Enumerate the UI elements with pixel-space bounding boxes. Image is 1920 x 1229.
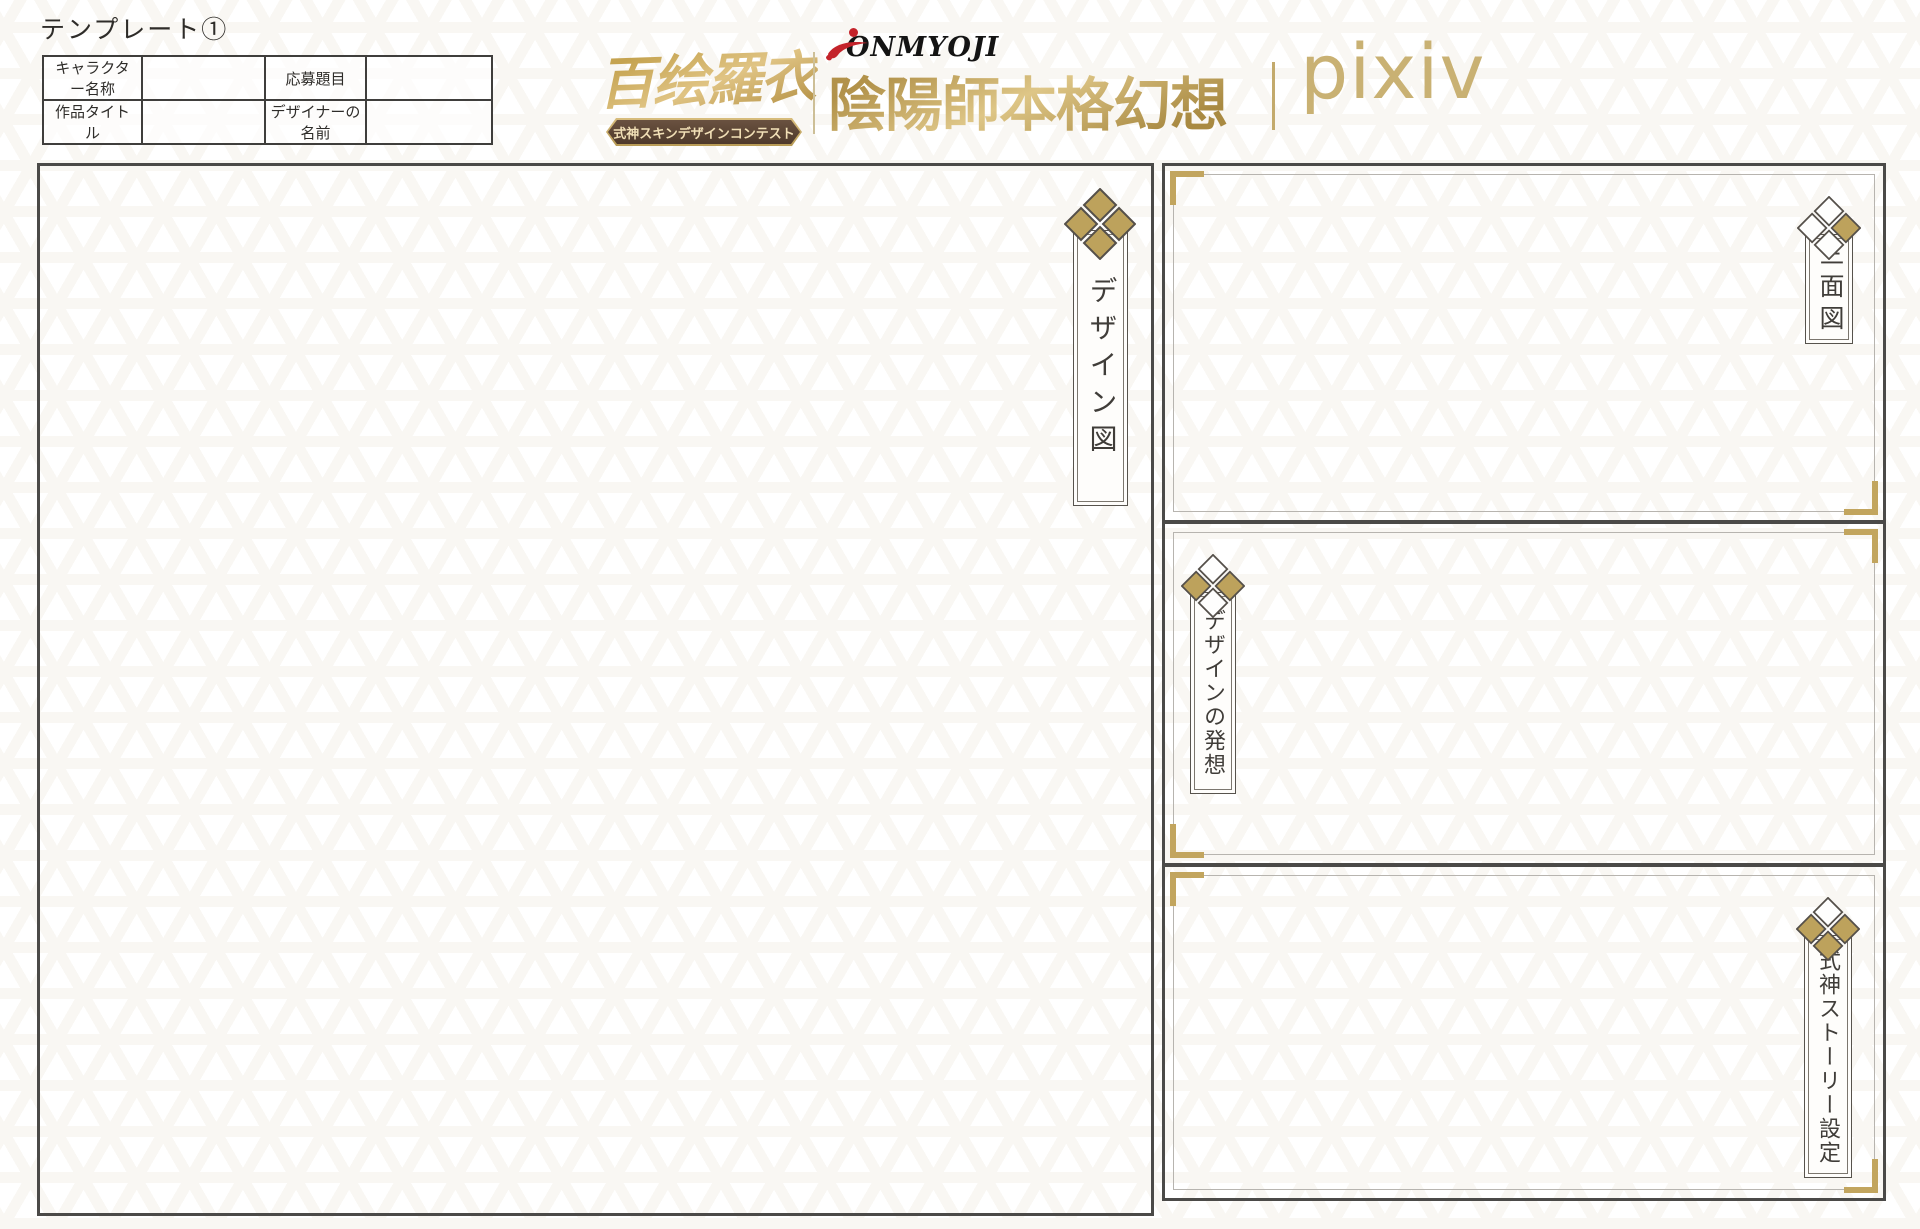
three-view-panel: [1162, 163, 1886, 523]
gold-corner-icon: [1844, 529, 1878, 563]
page-title: テンプレート①: [40, 10, 228, 46]
label-text: 式神ストーリー設定: [1812, 949, 1844, 1165]
template-sheet: テンプレート① キャラクター名称 応募題目 作品タイトル デザイナーの名前 百绘…: [0, 0, 1920, 1229]
contest-ribbon-label: 式神スキンデザインコンテスト: [613, 123, 795, 142]
designer-name-field[interactable]: [366, 100, 492, 144]
flower-icon: ✿: [598, 126, 607, 139]
work-title-label: 作品タイトル: [43, 100, 142, 144]
diamond-cluster-icon: [1064, 188, 1136, 260]
design-drawing-panel: [37, 163, 1154, 1216]
design-concept-label: デザインの発想: [1190, 592, 1236, 794]
table-row: キャラクター名称 応募題目: [43, 56, 492, 100]
contest-logo: 百绘羅衣: [597, 32, 820, 121]
pixiv-logo: pixiv: [1300, 34, 1485, 110]
gold-corner-icon: [1170, 872, 1204, 906]
character-name-field[interactable]: [142, 56, 265, 100]
onmyoji-title: 陰陽師本格幻想RPG: [828, 58, 1266, 142]
entry-subject-field[interactable]: [366, 56, 492, 100]
gold-corner-icon: [1170, 171, 1204, 205]
logo-divider: [813, 52, 815, 134]
panel-inner-line: [1173, 532, 1875, 855]
panel-inner-line: [1173, 174, 1875, 512]
entry-info-table: キャラクター名称 応募題目 作品タイトル デザイナーの名前: [42, 55, 493, 145]
designer-name-label: デザイナーの名前: [265, 100, 366, 144]
label-text: デザイン図: [1081, 276, 1121, 461]
label-text: デザインの発想: [1197, 609, 1229, 777]
work-title-field[interactable]: [142, 100, 265, 144]
table-row: 作品タイトル デザイナーの名前: [43, 100, 492, 144]
design-drawing-label: デザイン図: [1073, 230, 1128, 506]
onmyoji-title-text: 陰陽師本格幻想: [828, 73, 1227, 138]
character-name-label: キャラクター名称: [43, 56, 142, 100]
entry-subject-label: 応募題目: [265, 56, 366, 100]
onmyoji-rpg-suffix: RPG: [1229, 104, 1266, 124]
story-setting-panel: [1162, 864, 1886, 1201]
red-dot-icon: [849, 28, 858, 37]
diamond-cluster-icon: [1796, 897, 1860, 961]
contest-ribbon: ✿ 式神スキンデザインコンテスト ✿: [606, 118, 802, 146]
story-setting-label: 式神ストーリー設定: [1804, 935, 1852, 1178]
panel-inner-line: [1173, 875, 1875, 1190]
gold-corner-icon: [1170, 824, 1204, 858]
logo-divider: [1272, 62, 1275, 130]
design-concept-panel: [1162, 521, 1886, 866]
diamond-cluster-icon: [1181, 554, 1245, 618]
diamond-cluster-icon: [1797, 196, 1861, 260]
gold-corner-icon: [1844, 481, 1878, 515]
flower-icon: ✿: [801, 126, 810, 139]
